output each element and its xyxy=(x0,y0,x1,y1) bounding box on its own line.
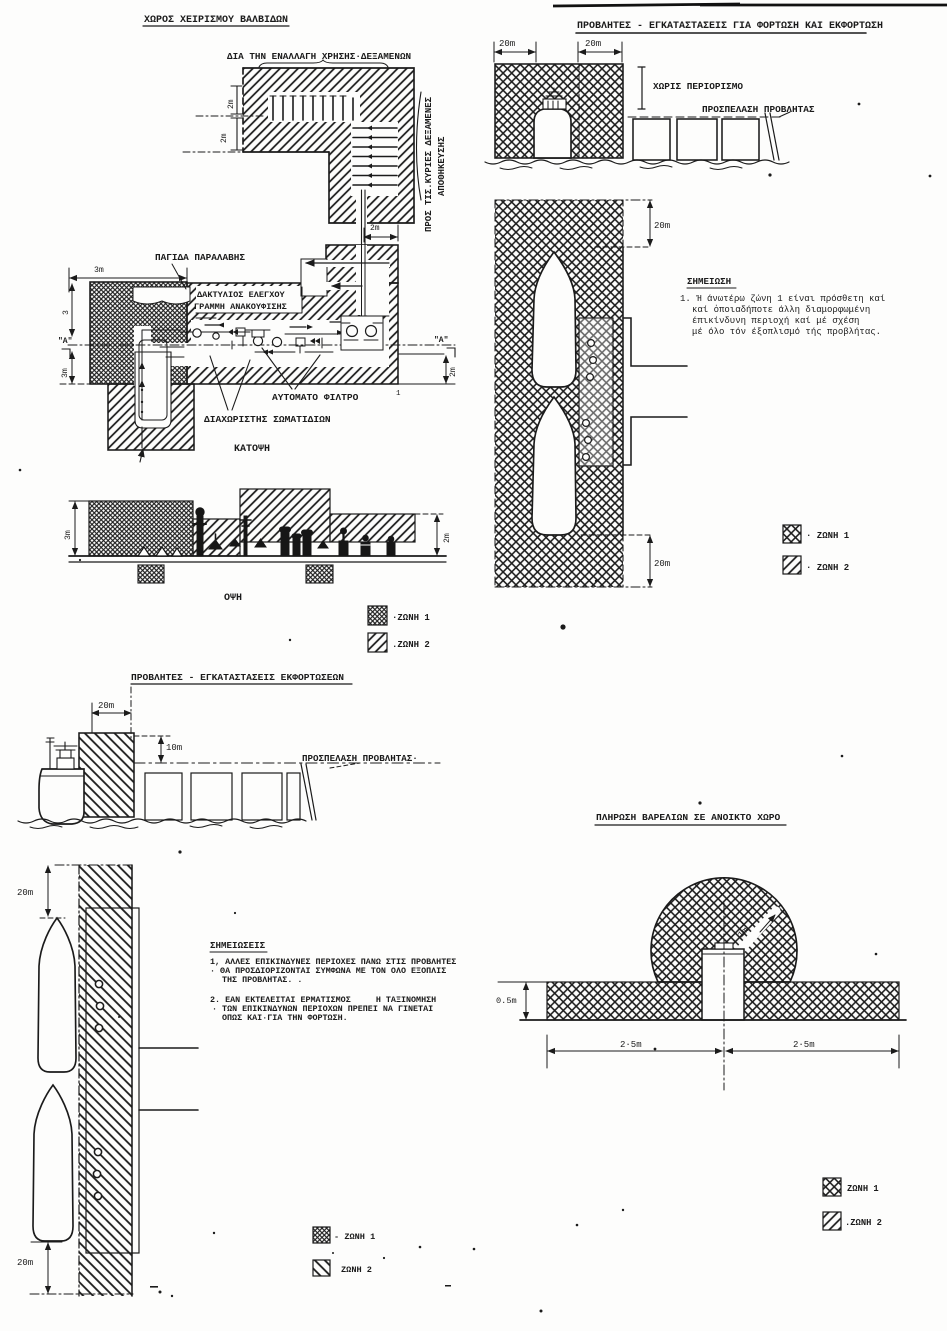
svg-text:ΧΩΡΟΣ ΧΕΙΡΙΣΜΟΥ ΒΑΛΒΙΔΩΝ: ΧΩΡΟΣ ΧΕΙΡΙΣΜΟΥ ΒΑΛΒΙΔΩΝ xyxy=(144,15,288,26)
svg-text:ΓΡΑΜΜΗ ΑΝΑΚΟΥΦΙΣΗΣ: ΓΡΑΜΜΗ ΑΝΑΚΟΥΦΙΣΗΣ xyxy=(194,302,287,312)
svg-text:2m: 2m xyxy=(449,367,458,377)
svg-text:ΔΙΑ ΤΗΝ ΕΝΑΛΛΑΓΗ ΧΡΗΣΗΣ·ΔΕΞΑΜΕ: ΔΙΑ ΤΗΝ ΕΝΑΛΛΑΓΗ ΧΡΗΣΗΣ·ΔΕΞΑΜΕΝΩΝ xyxy=(227,51,411,62)
svg-text:10m: 10m xyxy=(166,743,182,753)
svg-text:ΤΗΣ ΠΡΟΒΛΗΤΑΣ. .: ΤΗΣ ΠΡΟΒΛΗΤΑΣ. . xyxy=(222,975,302,985)
svg-text:20m: 20m xyxy=(585,39,601,49)
svg-text:2m: 2m xyxy=(370,224,380,233)
svg-text:ΠΡΟΒΛΗΤΕΣ - ΕΓΚΑΤΑΣΤΑΣΕΙΣ ΓΙΑ: ΠΡΟΒΛΗΤΕΣ - ΕΓΚΑΤΑΣΤΑΣΕΙΣ ΓΙΑ ΦΟΡΤΩΣΗ ΚΑ… xyxy=(577,21,883,32)
svg-text:·ΖΩΝΗ 1: ·ΖΩΝΗ 1 xyxy=(392,613,430,623)
svg-text:ΣΗΜΕΙΩΣΗ: ΣΗΜΕΙΩΣΗ xyxy=(687,276,731,287)
svg-text:2m: 2m xyxy=(443,533,452,543)
svg-text:ΧΩΡΙΣ ΠΕΡΙΟΡΙΣΜΟ: ΧΩΡΙΣ ΠΕΡΙΟΡΙΣΜΟ xyxy=(653,81,743,92)
svg-text:ΟΨΗ: ΟΨΗ xyxy=(224,593,242,604)
svg-text:ΖΩΝΗ 2: ΖΩΝΗ 2 xyxy=(341,1265,372,1275)
svg-text:έπικίνδυνη περιοχή καί μέ σχέσ: έπικίνδυνη περιοχή καί μέ σχέση xyxy=(692,316,859,326)
svg-text:ΚΑΤΟΨΗ: ΚΑΤΟΨΗ xyxy=(234,444,270,455)
svg-text:3m: 3m xyxy=(94,266,104,275)
svg-text:ΠΡΟΒΛΗΤΕΣ - ΕΓΚΑΤΑΣΤΑΣΕΙΣ ΕΚΦ: ΠΡΟΒΛΗΤΕΣ - ΕΓΚΑΤΑΣΤΑΣΕΙΣ ΕΚΦΟΡΤΩΣΕΩΝ xyxy=(131,672,344,683)
svg-text:· ΖΩΝΗ 1: · ΖΩΝΗ 1 xyxy=(806,531,850,541)
svg-text:20m: 20m xyxy=(654,221,670,231)
svg-text:καί ὁποιαδήποτε άλλη διαμορφωμ: καί ὁποιαδήποτε άλλη διαμορφωμένη xyxy=(692,305,870,315)
svg-text:ΠΡΟΣΠΕΛΑΣΗ ΠΡΟΒΛΗΤΑΣ: ΠΡΟΣΠΕΛΑΣΗ ΠΡΟΒΛΗΤΑΣ xyxy=(702,104,815,115)
svg-text:3m: 3m xyxy=(64,530,73,540)
svg-text:- ΖΩΝΗ 1: - ΖΩΝΗ 1 xyxy=(334,1232,375,1242)
svg-text:20m: 20m xyxy=(17,888,33,898)
svg-text:ΖΩΝΗ 1: ΖΩΝΗ 1 xyxy=(847,1184,879,1194)
svg-text:2·5m: 2·5m xyxy=(793,1040,815,1050)
svg-text:2·5m: 2·5m xyxy=(620,1040,642,1050)
svg-text:μέ όλο τόν έξοπλισμό τής προβλ: μέ όλο τόν έξοπλισμό τής προβλήτας. xyxy=(692,327,881,337)
svg-text:ΠΛΗΡΩΣΗ ΒΑΡΕΛΙΩΝ ΣΕ ΑΝΟΙΚΤΟ ΧΩ: ΠΛΗΡΩΣΗ ΒΑΡΕΛΙΩΝ ΣΕ ΑΝΟΙΚΤΟ ΧΩΡΟ xyxy=(596,812,780,823)
svg-text:ΠΡΟΣΠΕΛΑΣΗ ΠΡΟΒΛΗΤΑΣ·: ΠΡΟΣΠΕΛΑΣΗ ΠΡΟΒΛΗΤΑΣ· xyxy=(302,753,418,764)
svg-text:ΠΡΟΣ ΤΙΣ.ΚΥΡΙΕΣ ΔΕΞΑΜΕΝΕΣ: ΠΡΟΣ ΤΙΣ.ΚΥΡΙΕΣ ΔΕΞΑΜΕΝΕΣ xyxy=(424,96,434,232)
svg-text:1: 1 xyxy=(396,390,401,398)
svg-text:ΔΑΚΤΥΛΙΟΣ ΕΛΕΓΧΟΥ: ΔΑΚΤΥΛΙΟΣ ΕΛΕΓΧΟΥ xyxy=(197,290,286,300)
svg-text:2m: 2m xyxy=(227,99,236,109)
svg-text:1. Ή άνωτέρω ζώνη 1 είναι πρόσ: 1. Ή άνωτέρω ζώνη 1 είναι πρόσθετη καί xyxy=(680,294,885,304)
svg-text:0.5m: 0.5m xyxy=(496,996,517,1006)
svg-text:.ΖΩΝΗ 2: .ΖΩΝΗ 2 xyxy=(392,640,430,650)
svg-text:ΑΥΤΟΜΑΤΟ ΦΙΛΤΡΟ: ΑΥΤΟΜΑΤΟ ΦΙΛΤΡΟ xyxy=(272,392,359,403)
svg-text:"A": "A" xyxy=(434,336,448,345)
svg-text:20m: 20m xyxy=(17,1258,33,1268)
svg-text:ΔΙΑΧΩΡΙΣΤΗΣ ΣΩΜΑΤΙΔΙΩΝ: ΔΙΑΧΩΡΙΣΤΗΣ ΣΩΜΑΤΙΔΙΩΝ xyxy=(204,414,331,425)
svg-text:20m: 20m xyxy=(654,559,670,569)
svg-text:ΣΗΜΕΙΩΣΕΙΣ: ΣΗΜΕΙΩΣΕΙΣ xyxy=(210,940,266,951)
svg-text:20m: 20m xyxy=(499,39,515,49)
svg-text:"A": "A" xyxy=(58,337,72,346)
svg-text:ΑΠΟΘΗΚΕΥΣΗΣ: ΑΠΟΘΗΚΕΥΣΗΣ xyxy=(437,136,447,196)
svg-text:· ΖΩΝΗ 2: · ΖΩΝΗ 2 xyxy=(806,563,849,573)
svg-text:ΠΑΓΙΔΑ ΠΑΡΑΛΑΒΗΣ: ΠΑΓΙΔΑ ΠΑΡΑΛΑΒΗΣ xyxy=(155,252,245,263)
svg-text:2m: 2m xyxy=(220,133,229,143)
svg-text:3m: 3m xyxy=(61,368,70,378)
svg-text:3: 3 xyxy=(62,310,71,315)
svg-text:.ΖΩΝΗ 2: .ΖΩΝΗ 2 xyxy=(845,1218,882,1228)
svg-text:20m: 20m xyxy=(98,701,114,711)
svg-text:ΟΠΩΣ ΚΑΙ·ΓΙΑ ΤΗΝ ΦΟΡΤΩΣΗ.: ΟΠΩΣ ΚΑΙ·ΓΙΑ ΤΗΝ ΦΟΡΤΩΣΗ. xyxy=(222,1013,348,1023)
